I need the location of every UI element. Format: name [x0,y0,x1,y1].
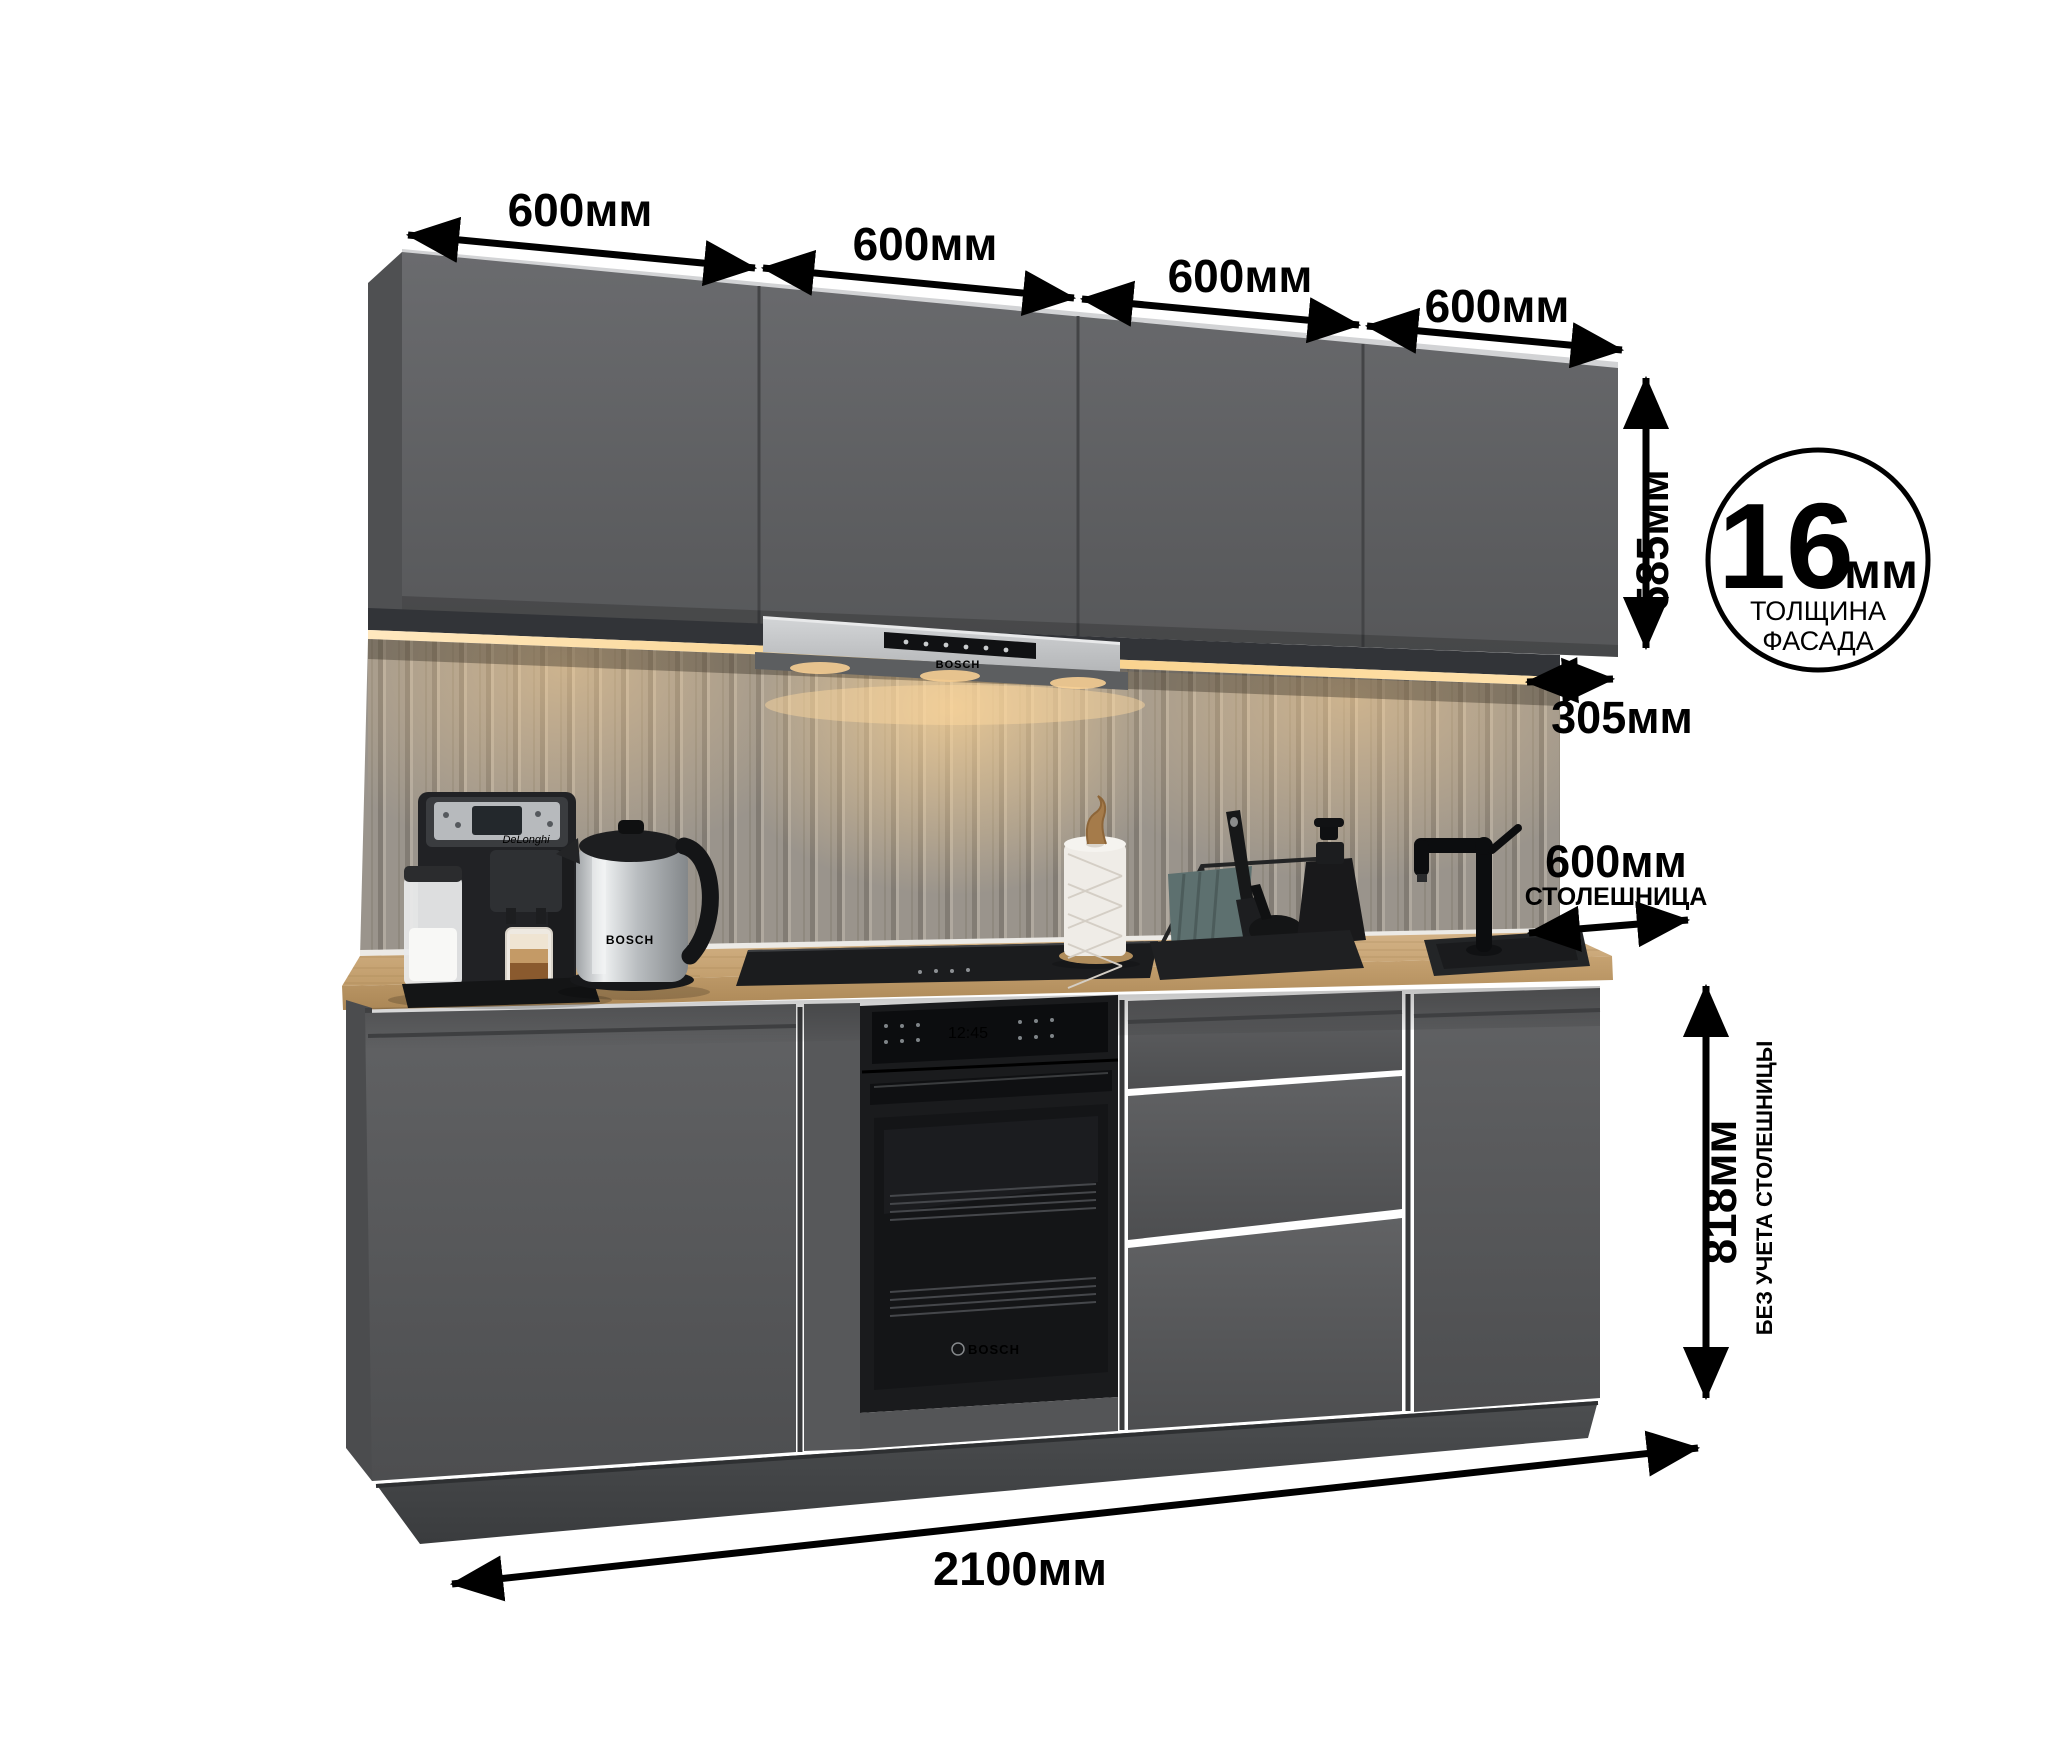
drawer-front-3 [1128,1218,1402,1430]
thickness-caption-1: ТОЛЩИНА [1750,596,1886,626]
kettle-brand-label: BOSCH [606,933,654,947]
dim-585-label: 585мм [1627,469,1678,611]
coffee-brand-label: DeLonghi [502,834,550,846]
milk-level [409,928,457,981]
coffee-spout-left [506,908,516,924]
oven-clock: 12:45 [948,1025,988,1042]
dim-600-label-3: 600мм [1168,250,1313,302]
kettle-highlight [592,856,606,974]
kettle-lid-knob [618,820,644,834]
thickness-badge: 16 мм ТОЛЩИНА ФАСАДА [1708,450,1928,670]
hood-lamp-3 [1050,677,1106,689]
soap-dispenser-spout [1314,818,1344,827]
soap-dispenser-neck [1316,842,1344,864]
dim-305-label: 305мм [1551,692,1693,743]
dim-2100-label: 2100мм [933,1542,1107,1595]
dim-counter-caption: СТОЛЕШНИЦА [1525,883,1708,911]
dim-818-label: 818мм [1694,1120,1746,1265]
hood-lamp-1 [790,662,850,674]
hood-lamp-2 [920,670,980,682]
latte-layer-foam [510,934,548,949]
coffee-machine-screen [472,806,522,835]
wall-cabinet-side-panel [368,252,402,617]
coffee-brew-group [490,850,562,912]
dim-600-label-2: 600мм [853,218,998,270]
oven-brand-label: BOSCH [968,1342,1020,1357]
dim-600-label-1: 600мм [508,184,653,236]
base-door-left [365,1004,796,1481]
turner-hole [1230,817,1238,827]
coffee-spout-right [536,908,546,924]
thickness-unit: мм [1844,543,1918,599]
dim-818-caption: БЕЗ УЧЕТА СТОЛЕШНИЦЫ [1752,1041,1777,1336]
dim-counter-value: 600мм [1545,836,1687,887]
faucet-nozzle [1417,874,1427,882]
thickness-caption-2: ФАСАДА [1762,626,1873,656]
hood-underglow [765,685,1145,725]
dim-305-arrow [1527,679,1613,682]
kettle-lid [579,830,683,862]
latte-layer-coffee [510,962,548,981]
faucet-spout [1414,840,1429,876]
latte-layer-milk [510,948,548,963]
hood-brand-label: BOSCH [936,659,981,671]
thickness-value: 16 [1718,478,1854,614]
base-door-sink [1414,988,1600,1412]
oven: 12:45 BOSCH [860,995,1118,1449]
drawer-front-2 [1128,1076,1402,1240]
faucet-riser [1476,846,1492,952]
milk-carafe-lid [404,866,462,882]
dim-600-label-4: 600мм [1425,280,1570,332]
kitchen-spec-render: BOSCH DeLonghi [0,0,2048,1757]
oven-unit-filler [804,1003,860,1451]
